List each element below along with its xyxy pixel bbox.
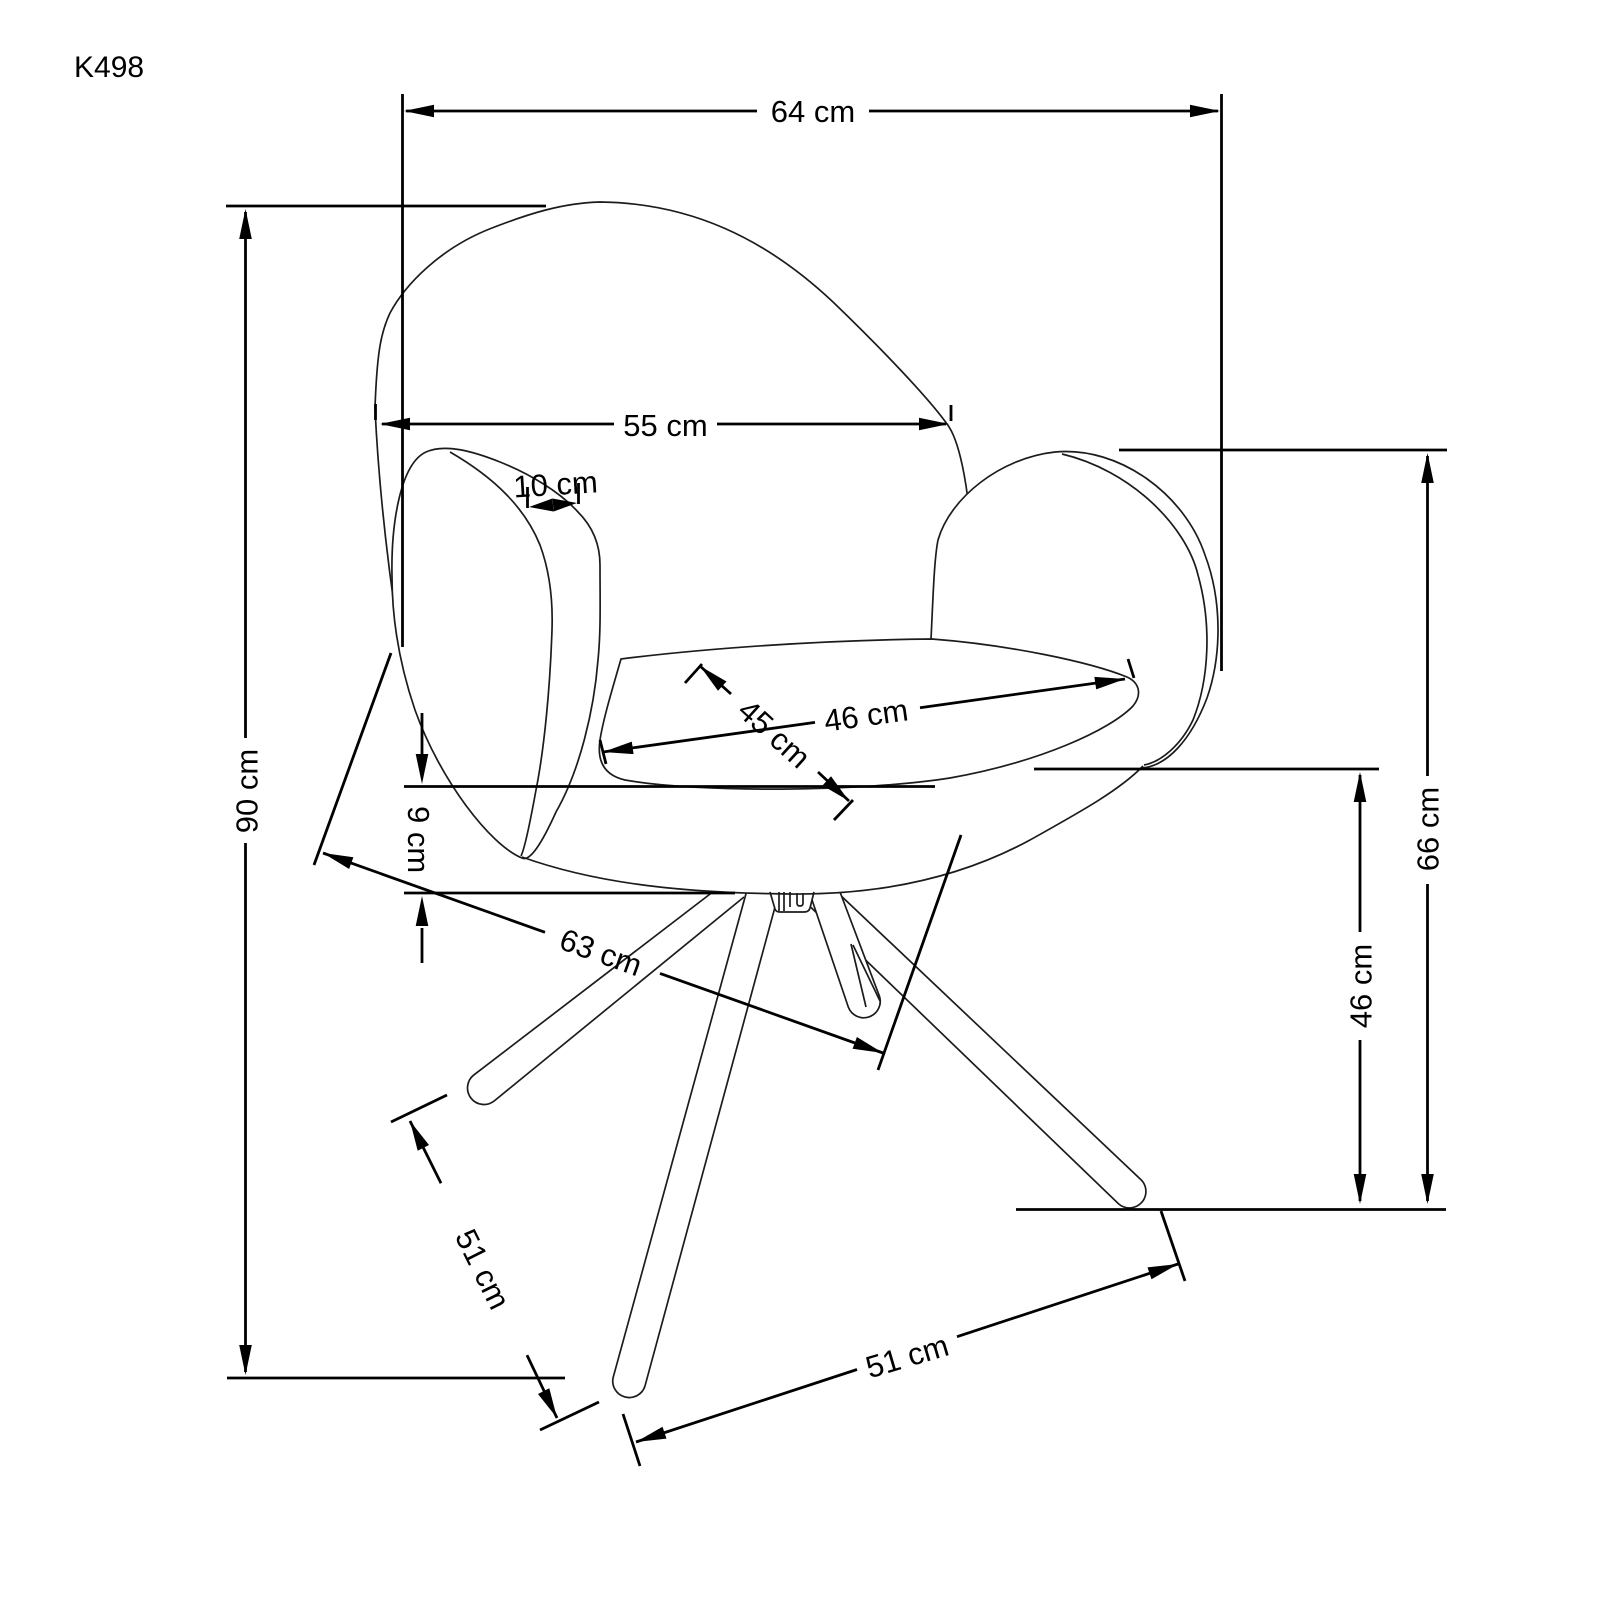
svg-text:64 cm: 64 cm bbox=[771, 94, 855, 129]
svg-text:90 cm: 90 cm bbox=[230, 749, 265, 833]
svg-text:66 cm: 66 cm bbox=[1411, 787, 1446, 871]
svg-text:K498: K498 bbox=[74, 51, 144, 84]
svg-text:55 cm: 55 cm bbox=[623, 408, 707, 443]
svg-text:46 cm: 46 cm bbox=[1344, 944, 1379, 1028]
svg-text:9 cm: 9 cm bbox=[401, 806, 436, 873]
svg-text:10 cm: 10 cm bbox=[512, 464, 598, 504]
